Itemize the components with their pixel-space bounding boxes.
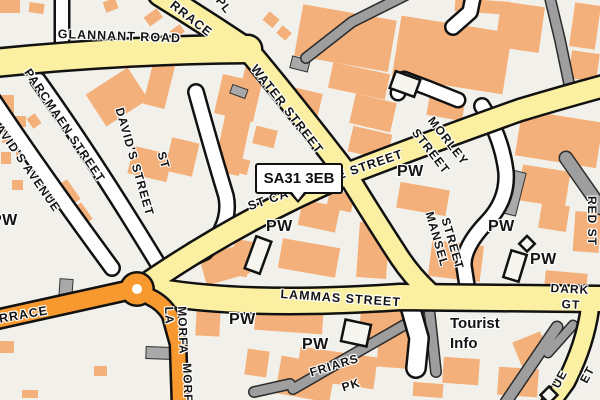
primary-road [0, 271, 180, 400]
roundabout-center-dot [132, 284, 142, 294]
map-canvas[interactable]: GLANNANT ROADRRACEPLWATER STREETST CATHE… [0, 0, 600, 400]
postcode-marker: SA31 3EB [255, 163, 343, 194]
postcode-text: SA31 3EB [264, 170, 335, 187]
